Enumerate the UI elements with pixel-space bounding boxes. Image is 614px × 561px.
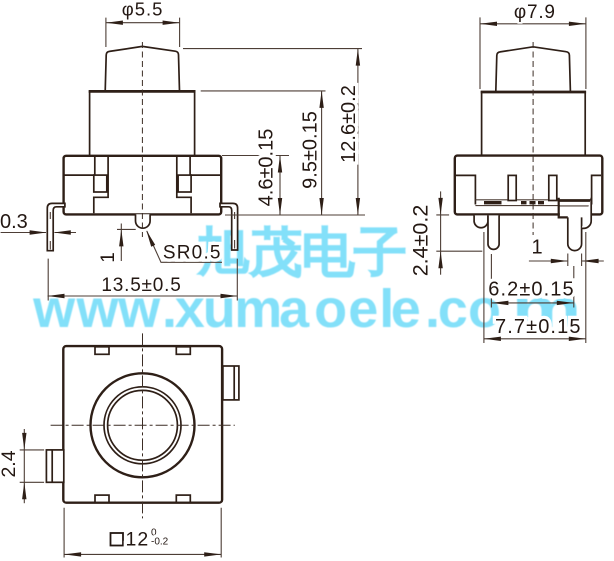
svg-text:0.3: 0.3 — [0, 211, 28, 233]
svg-text:7.7±0.15: 7.7±0.15 — [495, 316, 582, 338]
svg-text:12: 12 — [126, 529, 150, 551]
svg-text:1: 1 — [98, 252, 119, 263]
svg-text:-0.2: -0.2 — [151, 537, 169, 548]
svg-text:13.5±0.5: 13.5±0.5 — [101, 275, 181, 296]
svg-text:2.4±0.2: 2.4±0.2 — [409, 205, 433, 277]
svg-text:φ5.5: φ5.5 — [122, 0, 164, 20]
svg-text:φ7.9: φ7.9 — [514, 2, 556, 23]
svg-text:4.6±0.15: 4.6±0.15 — [256, 129, 278, 207]
svg-text:1: 1 — [531, 237, 542, 259]
svg-text:9.5±0.15: 9.5±0.15 — [300, 111, 322, 189]
svg-text:SR0.5: SR0.5 — [163, 243, 222, 264]
svg-text:12.6±0.2: 12.6±0.2 — [338, 85, 360, 163]
svg-text:6.2±0.15: 6.2±0.15 — [488, 278, 575, 300]
svg-text:2.4: 2.4 — [0, 450, 20, 477]
